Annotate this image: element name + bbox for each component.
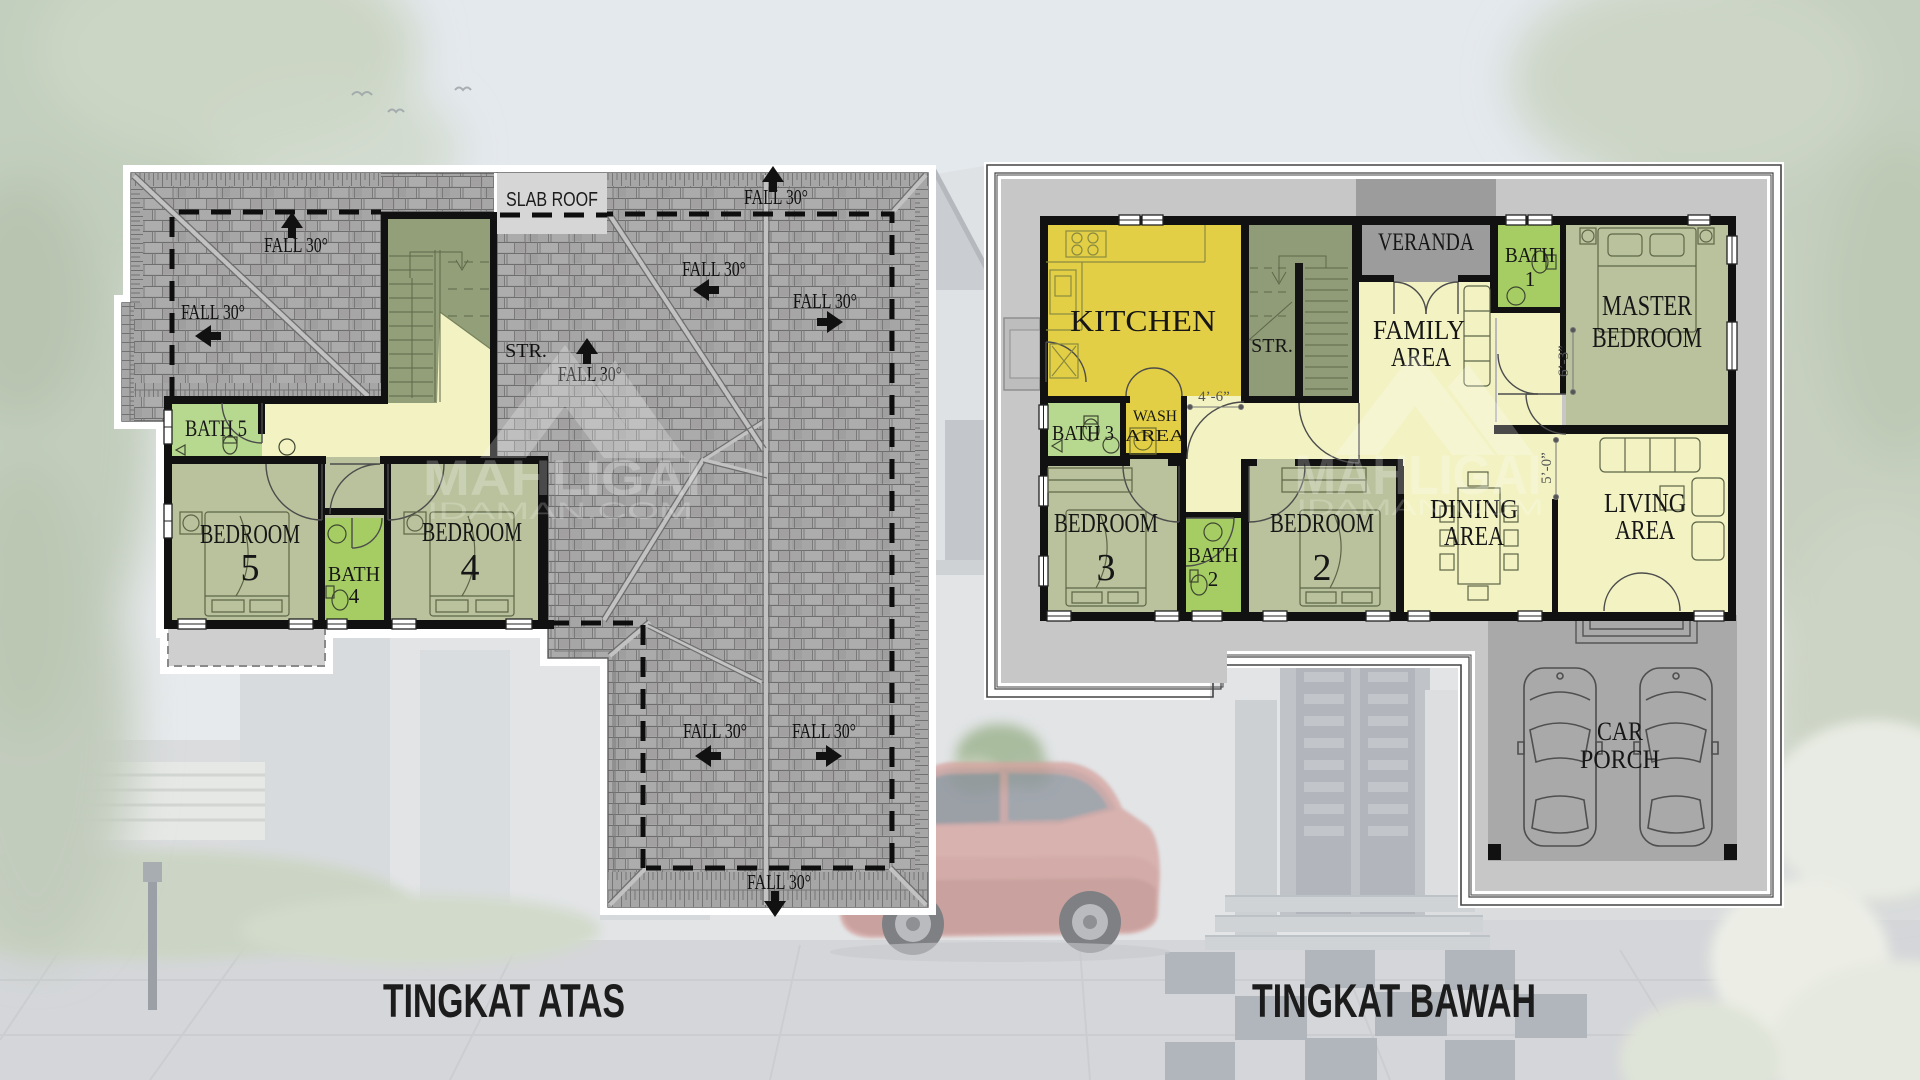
svg-text:PORCH: PORCH <box>1580 745 1660 774</box>
svg-text:4: 4 <box>461 547 480 589</box>
svg-text:5: 5 <box>241 547 260 589</box>
svg-text:BATH: BATH <box>328 562 380 586</box>
svg-text:4’-6”: 4’-6” <box>1198 389 1230 405</box>
svg-text:SLAB ROOF: SLAB ROOF <box>506 189 598 211</box>
svg-text:3: 3 <box>1097 547 1116 589</box>
svg-text:BEDROOM: BEDROOM <box>1592 323 1702 354</box>
svg-text:FALL 30°: FALL 30° <box>682 257 746 281</box>
svg-text:FALL 30°: FALL 30° <box>792 719 856 743</box>
svg-text:4: 4 <box>349 584 360 608</box>
svg-text:FALL 30°: FALL 30° <box>181 300 245 324</box>
svg-text:WASH: WASH <box>1133 408 1177 425</box>
svg-text:CAR: CAR <box>1597 717 1644 746</box>
svg-text:VERANDA: VERANDA <box>1378 229 1474 256</box>
svg-text:1: 1 <box>1525 267 1536 291</box>
svg-text:FALL 30°: FALL 30° <box>793 289 857 313</box>
svg-text:TINGKAT BAWAH: TINGKAT BAWAH <box>1252 974 1536 1027</box>
svg-text:KITCHEN: KITCHEN <box>1070 303 1216 338</box>
svg-text:2: 2 <box>1208 567 1219 591</box>
svg-text:FALL 30°: FALL 30° <box>747 870 811 894</box>
svg-text:AREA: AREA <box>1125 426 1186 445</box>
svg-text:IDAMAN.COM: IDAMAN.COM <box>427 498 693 525</box>
svg-text:LIVING: LIVING <box>1604 488 1686 518</box>
svg-text:MASTER: MASTER <box>1602 291 1692 322</box>
svg-text:BEDROOM: BEDROOM <box>1054 508 1158 538</box>
svg-text:AREA: AREA <box>1444 521 1504 551</box>
svg-text:BATH 3: BATH 3 <box>1052 421 1114 445</box>
svg-text:BATH: BATH <box>1188 543 1238 567</box>
svg-text:TINGKAT ATAS: TINGKAT ATAS <box>383 974 625 1027</box>
svg-text:BATH 5: BATH 5 <box>185 416 247 441</box>
svg-text:AREA: AREA <box>1615 515 1675 545</box>
svg-text:STR.: STR. <box>505 340 547 362</box>
svg-text:2: 2 <box>1313 547 1332 589</box>
svg-text:BEDROOM: BEDROOM <box>200 519 300 549</box>
svg-text:6’-3”: 6’-3” <box>1556 345 1572 377</box>
svg-text:IDAMAN.COM: IDAMAN.COM <box>1297 495 1544 520</box>
svg-text:STR.: STR. <box>1251 335 1293 357</box>
svg-text:BATH: BATH <box>1505 243 1555 267</box>
svg-text:FALL 30°: FALL 30° <box>683 719 747 743</box>
svg-text:FAMILY: FAMILY <box>1373 315 1465 345</box>
